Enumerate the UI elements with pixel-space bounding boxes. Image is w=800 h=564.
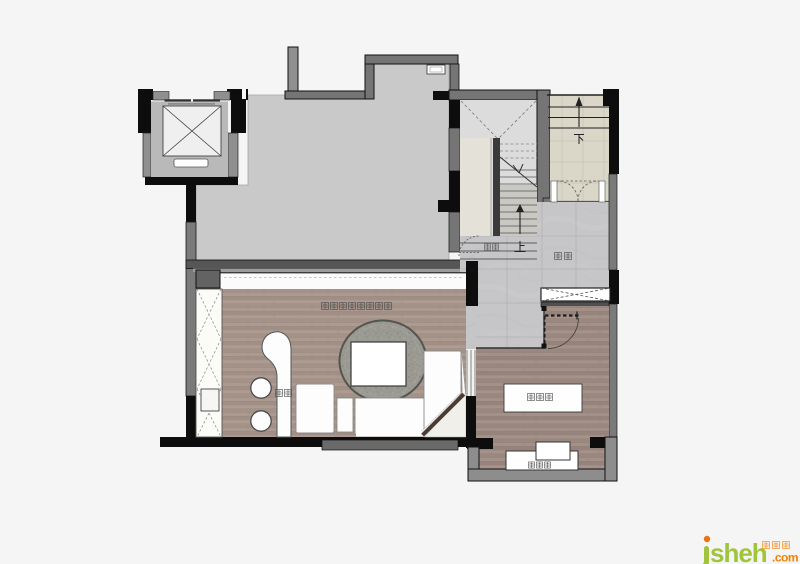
svg-text:sheh: sheh [710, 538, 767, 564]
svg-text:.com: .com [772, 551, 798, 564]
